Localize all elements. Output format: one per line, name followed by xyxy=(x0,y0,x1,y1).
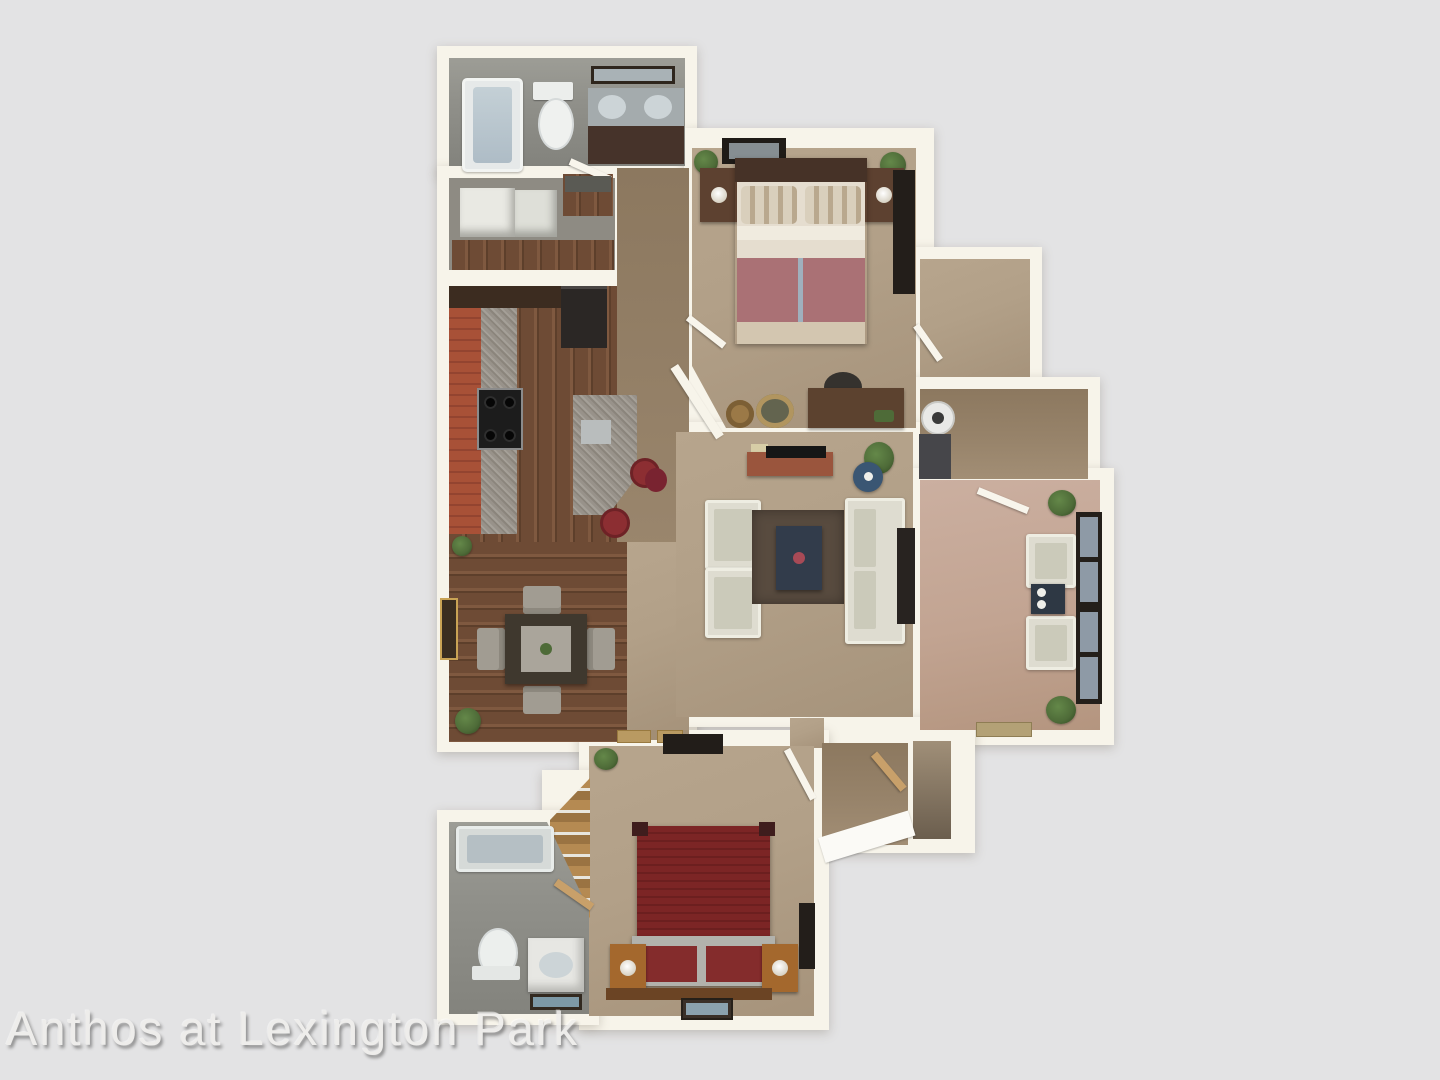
washer xyxy=(921,401,955,435)
coffee-table-flowers xyxy=(793,552,805,564)
bar-stool-2 xyxy=(600,508,630,538)
nightstand-b1-left xyxy=(700,168,738,222)
dining-chair-left xyxy=(477,628,505,670)
refrigerator xyxy=(561,286,607,348)
hall2-opening xyxy=(790,718,824,748)
threshold-mat-1 xyxy=(617,730,651,743)
plant-patio-top xyxy=(1048,490,1076,516)
cup xyxy=(1037,588,1046,597)
cushion xyxy=(714,577,752,629)
nightstand-b2-right xyxy=(762,944,798,992)
plant-dining-top xyxy=(452,536,472,556)
lamp xyxy=(876,187,892,203)
media-electronics xyxy=(766,446,826,458)
bed-2 xyxy=(637,826,770,938)
dining-side-door xyxy=(440,598,458,660)
window-pane xyxy=(1080,517,1098,557)
stove xyxy=(477,388,523,450)
dryer xyxy=(919,434,951,479)
lamp xyxy=(620,960,636,976)
peninsula-sink xyxy=(581,420,611,444)
plant-dining-bottom xyxy=(455,708,481,734)
cup xyxy=(864,472,873,481)
vanity-1-cabinet xyxy=(588,126,684,164)
tv-console xyxy=(897,528,915,624)
basket-2 xyxy=(756,394,794,428)
dining-table xyxy=(505,614,587,684)
patio-floor xyxy=(920,480,1100,730)
bed2-foot-panel-left xyxy=(641,946,697,982)
nightstand-b2-left xyxy=(610,944,646,992)
sink-left xyxy=(598,95,626,119)
window-pane xyxy=(1080,657,1098,699)
bed2-foot-panel-right xyxy=(706,946,762,982)
patio-chair-1 xyxy=(1026,534,1076,588)
patio-window-wall xyxy=(1076,512,1102,704)
lamp xyxy=(711,187,727,203)
bathtub-2 xyxy=(456,826,554,872)
washer-door xyxy=(932,412,944,424)
patio-chair-2 xyxy=(1026,616,1076,670)
closet1-wood-strip xyxy=(452,240,614,270)
coffee-table xyxy=(776,526,822,590)
toilet-1-bowl xyxy=(538,98,574,150)
burner xyxy=(484,429,497,442)
plant-patio-bottom xyxy=(1046,696,1076,724)
patio-doormat xyxy=(976,722,1032,737)
patio-table xyxy=(1031,584,1065,614)
pantry-shelf xyxy=(565,176,611,192)
kitchen-upper-counter xyxy=(449,286,567,308)
bed1-blanket xyxy=(737,258,865,322)
bathtub-1-water xyxy=(473,87,512,163)
bedroom2-dresser xyxy=(799,903,815,969)
sofa xyxy=(845,498,905,644)
toilet-2-base xyxy=(472,966,520,980)
cushion xyxy=(714,509,752,561)
bedroom1-desk xyxy=(808,388,904,428)
lamp xyxy=(772,960,788,976)
coat-closet-floor xyxy=(913,741,951,839)
sink-2 xyxy=(539,952,573,978)
vanity-1-counter xyxy=(588,88,684,126)
vanity-1-mirror-glass xyxy=(594,69,672,81)
bedroom1-tv-screen xyxy=(729,143,779,159)
sofa-cushion-1 xyxy=(854,509,876,567)
bed1-headboard xyxy=(735,158,867,182)
bed-1 xyxy=(735,158,867,344)
closet1-shelf-unit-2 xyxy=(515,190,557,237)
burner xyxy=(503,396,516,409)
desk-plant xyxy=(874,410,894,422)
dining-chair-right xyxy=(587,628,615,670)
basket-1 xyxy=(726,400,754,428)
bathtub-1 xyxy=(462,78,523,172)
bed1-footskirt xyxy=(737,322,865,344)
plant-bedroom2 xyxy=(594,748,618,770)
bedroom1-dresser xyxy=(893,170,915,294)
sofa-cushion-2 xyxy=(854,571,876,629)
dining-chair-top xyxy=(523,586,561,614)
sink-right xyxy=(644,95,672,119)
bed1-pillow-right xyxy=(805,186,861,224)
burner xyxy=(503,429,516,442)
bed2-post-left xyxy=(632,822,648,836)
bed2-post-right xyxy=(759,822,775,836)
bed1-pillow-left xyxy=(741,186,797,224)
bathtub-2-water xyxy=(467,835,543,863)
window-pane xyxy=(1080,612,1098,652)
dining-centerpiece xyxy=(540,643,552,655)
cushion xyxy=(1035,543,1067,579)
bed1-blanket-stripe xyxy=(798,258,803,322)
window-pane xyxy=(1080,562,1098,602)
cup xyxy=(1037,600,1046,609)
dining-chair-bottom xyxy=(523,686,561,714)
side-table-round xyxy=(853,462,883,492)
floor-pillow xyxy=(645,468,667,492)
watermark: Anthos at Lexington Park xyxy=(6,1001,579,1056)
bedroom2-mat xyxy=(681,998,733,1020)
vanity-2 xyxy=(528,938,584,992)
closet1-shelf-unit-1 xyxy=(460,188,515,237)
bedroom2-tv xyxy=(663,734,723,754)
bed1-sheet-fold xyxy=(737,226,865,240)
bed2-footboard xyxy=(632,936,775,986)
cushion xyxy=(1035,625,1067,661)
vanity-1-mirror xyxy=(591,66,675,84)
burner xyxy=(484,396,497,409)
bedroom2-mat-center xyxy=(686,1003,728,1015)
floor-plan-render: Anthos at Lexington Park xyxy=(0,0,1440,1080)
